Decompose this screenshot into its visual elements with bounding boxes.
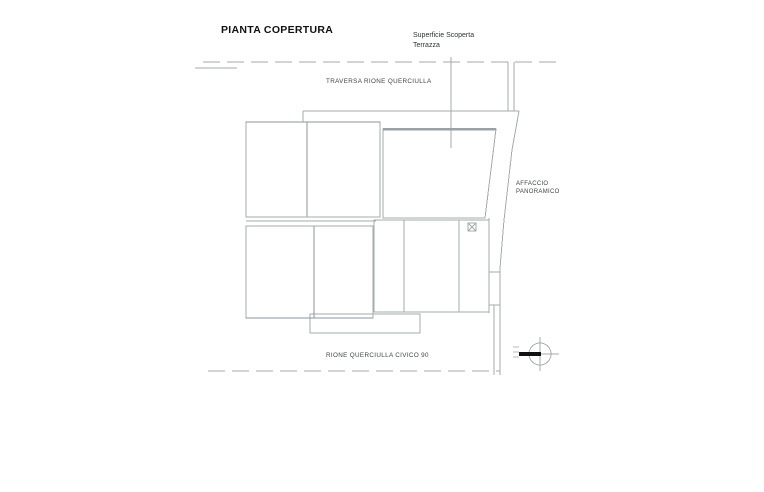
terrace-annotation-line1: Superficie Scoperta bbox=[413, 31, 474, 41]
street-label-bottom: RIONE QUERCIULLA CIVICO 90 bbox=[326, 352, 429, 360]
street-edge-top bbox=[195, 62, 562, 68]
panoramic-view-line2: PANORAMICO bbox=[516, 188, 560, 196]
plan-title: PIANTA COPERTURA bbox=[221, 24, 333, 38]
street-label-top: TRAVERSA RIONE QUERCIULLA bbox=[326, 78, 432, 86]
roof-vent-x-box-icon bbox=[468, 223, 476, 231]
north-arrow-icon bbox=[513, 337, 559, 371]
building-flat-roof bbox=[374, 220, 489, 312]
entrance-canopy bbox=[310, 314, 420, 333]
roof-ridge-band bbox=[246, 217, 380, 226]
panoramic-view-line1: AFFACCIO bbox=[516, 180, 560, 188]
side-projection bbox=[489, 218, 500, 313]
terrace-grid bbox=[383, 129, 496, 218]
plan-linework bbox=[0, 0, 764, 492]
roof-lower bbox=[246, 226, 373, 318]
roof-upper bbox=[246, 122, 380, 217]
terrace-annotation-line2: Terrazza bbox=[413, 41, 474, 51]
terrace-annotation: Superficie Scoperta Terrazza bbox=[413, 31, 474, 51]
panoramic-view-annotation: AFFACCIO PANORAMICO bbox=[516, 180, 560, 196]
roof-plan-canvas: PIANTA COPERTURA Superficie Scoperta Ter… bbox=[0, 0, 764, 492]
